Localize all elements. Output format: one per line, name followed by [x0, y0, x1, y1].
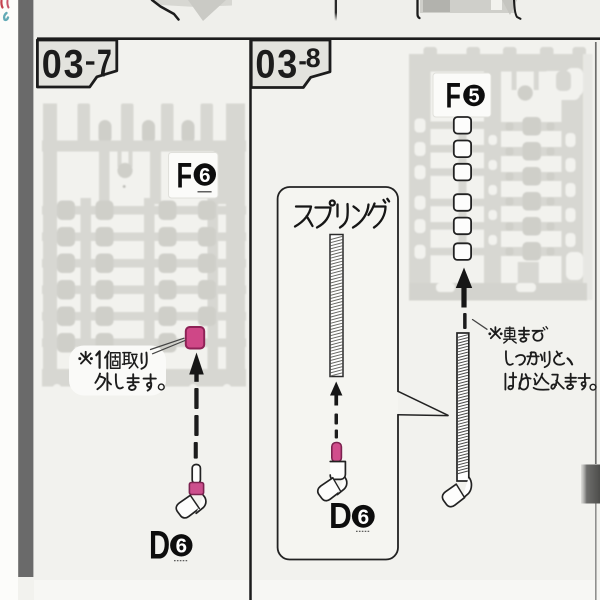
svg-text:D: D [329, 496, 352, 536]
svg-text:03: 03 [255, 43, 299, 87]
svg-text:6: 6 [357, 506, 369, 529]
svg-text:8: 8 [306, 43, 321, 73]
svg-text:F: F [446, 77, 461, 116]
svg-text:7: 7 [97, 43, 112, 86]
svg-text:F: F [177, 155, 193, 195]
svg-text:6: 6 [176, 535, 187, 558]
svg-text:5: 5 [468, 86, 479, 108]
svg-text:6: 6 [199, 164, 210, 187]
svg-text:03: 03 [42, 43, 86, 87]
svg-text:D: D [149, 524, 170, 567]
